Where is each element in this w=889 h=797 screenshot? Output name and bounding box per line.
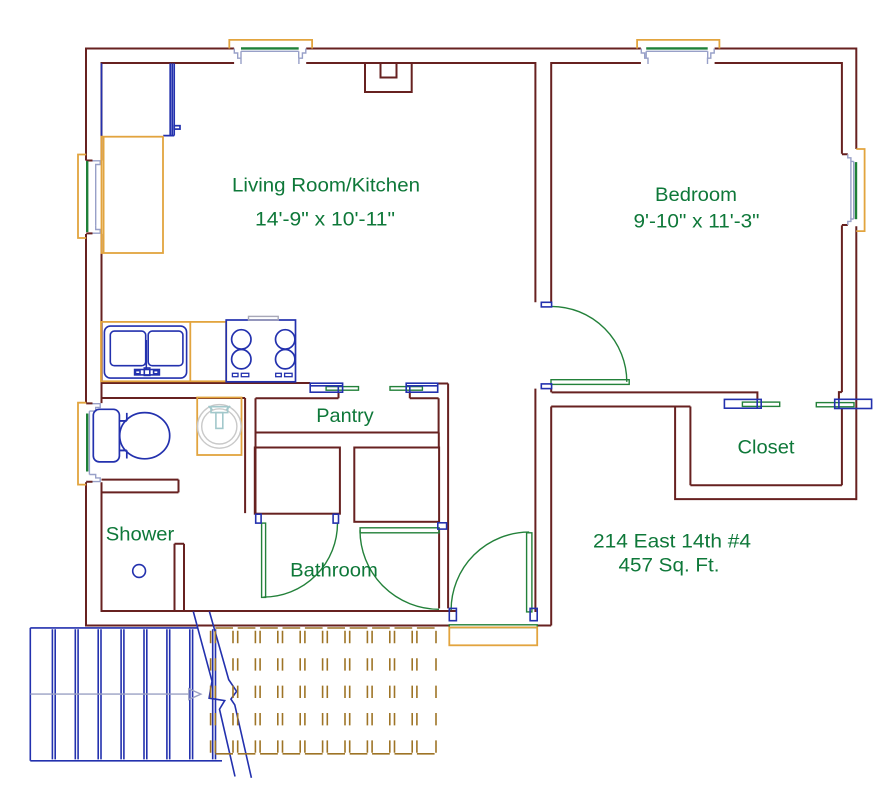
- svg-text:457 Sq. Ft.: 457 Sq. Ft.: [619, 555, 720, 577]
- svg-text:Shower: Shower: [106, 524, 175, 546]
- svg-text:14'-9" x 10'-11": 14'-9" x 10'-11": [255, 209, 395, 231]
- svg-text:9'-10" x 11'-3": 9'-10" x 11'-3": [634, 211, 760, 233]
- svg-text:Pantry: Pantry: [316, 405, 374, 427]
- svg-text:Bedroom: Bedroom: [655, 184, 737, 206]
- svg-text:Closet: Closet: [738, 437, 796, 459]
- svg-text:Living Room/Kitchen: Living Room/Kitchen: [232, 174, 420, 196]
- svg-text:214 East 14th #4: 214 East 14th #4: [593, 530, 751, 552]
- svg-text:Bathroom: Bathroom: [290, 560, 378, 582]
